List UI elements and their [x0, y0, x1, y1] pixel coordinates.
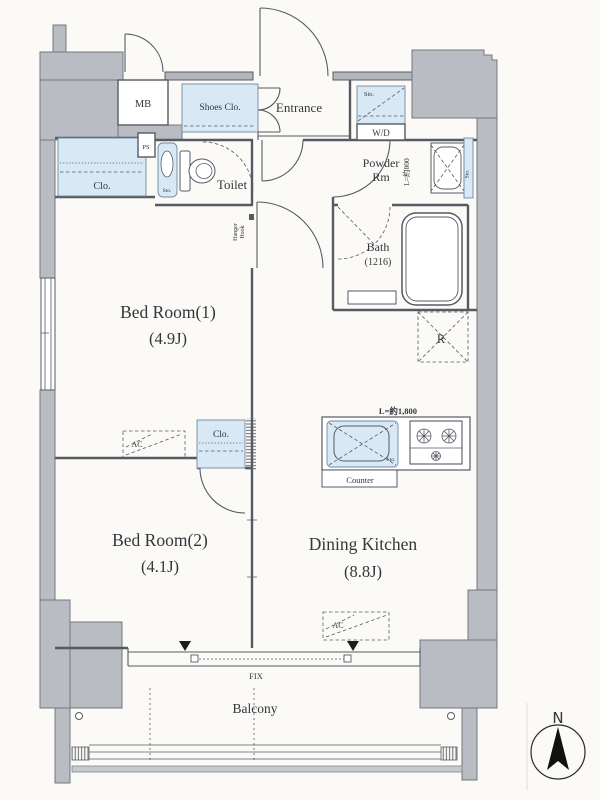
kitchen-stove — [410, 421, 462, 464]
floor-plan-drawing: MB Shoes Clo. Entrance Sto. W/D Clo. PS … — [0, 0, 600, 800]
fix-window: FIX — [128, 641, 420, 681]
entrance: Entrance — [258, 8, 328, 132]
balcony-left-leg — [55, 708, 70, 783]
railing-end-right — [441, 747, 457, 760]
bedroom2-size-label: (4.1J) — [141, 557, 179, 576]
mb-label: MB — [135, 99, 151, 110]
hanger-hook-label-1: Hanger — [233, 223, 239, 241]
wall-top-left-a — [40, 52, 123, 80]
fix-label: FIX — [249, 671, 263, 681]
compass: N — [527, 703, 585, 790]
entrance-door-arc — [260, 8, 328, 76]
wall-band-left-of-entrance — [165, 72, 253, 80]
bathtub — [402, 213, 462, 305]
fridge-label: R — [437, 332, 446, 346]
balcony: Balcony — [72, 688, 462, 772]
toilet-sto-label: Sto. — [163, 188, 172, 194]
bedroom1-door-arc — [257, 202, 323, 268]
balcony-label: Balcony — [233, 701, 278, 716]
hanger-hook-bracket — [249, 214, 254, 220]
powder-label-2: Rm — [372, 170, 390, 184]
mb-door-arc — [125, 34, 163, 72]
wall-left-upper — [40, 140, 55, 278]
wall-bottom-right-b — [420, 640, 497, 708]
bedroom1-label: Bed Room(1) — [120, 302, 216, 322]
balcony-edge — [72, 766, 462, 772]
bath-label-2: (1216) — [365, 257, 392, 268]
powder-room: Powder Rm L=約800 Sto. — [363, 138, 473, 198]
powder-rail-label: L=約800 — [401, 158, 411, 186]
dk-label: Dining Kitchen — [309, 534, 418, 554]
sink-sto-label: Sto. — [387, 457, 396, 463]
stove-burner-right — [442, 429, 456, 443]
kitchen-sink: Sto. — [327, 421, 398, 467]
wall-top-right-block — [412, 50, 497, 118]
wd-sto-label: Sto. — [364, 91, 375, 98]
toilet-label: Toilet — [217, 177, 248, 192]
wall-top-left-b — [40, 80, 118, 140]
bedroom1-size-label: (4.9J) — [149, 329, 187, 348]
wall-bottom-left-b — [70, 622, 122, 708]
powder-label-1: Powder — [363, 156, 400, 170]
washer-dryer-space: Sto. W/D — [357, 86, 405, 140]
dk-size-label: (8.8J) — [344, 562, 382, 581]
wall-right — [477, 118, 497, 640]
wd-label: W/D — [372, 128, 390, 138]
entrance-label: Entrance — [276, 100, 322, 115]
bedroom2-label: Bed Room(2) — [112, 530, 208, 550]
ac1-label: AC — [131, 440, 142, 449]
toilet-bowl — [189, 159, 215, 183]
hanger-hook: Hanger Hook — [233, 223, 246, 241]
stove-burner-left — [417, 429, 431, 443]
bath-room: Bath (1216) — [338, 207, 462, 305]
dining-kitchen: Dining Kitchen (8.8J) AC — [309, 534, 418, 640]
hanger-hook-label-2: Hook — [240, 225, 246, 238]
left-window — [41, 278, 55, 390]
compass-north-label: N — [552, 709, 563, 727]
balcony-railing — [89, 745, 441, 759]
bedroom-1: Bed Room(1) (4.9J) AC Clo. — [120, 202, 323, 513]
ac-space-bedroom1: AC — [123, 431, 185, 458]
wall-band-right-of-entrance — [333, 72, 412, 80]
closet-mid: Clo. — [197, 418, 256, 470]
window-marker-right — [347, 641, 359, 651]
closet-top-label: Clo. — [94, 181, 111, 192]
balcony-drain-right — [448, 713, 455, 720]
stove-burner-small — [432, 452, 441, 461]
balcony-right-leg — [462, 708, 477, 780]
shoes-closet: Shoes Clo. — [182, 84, 258, 132]
closet-mid-label: Clo. — [213, 430, 229, 440]
balcony-drain-left — [76, 713, 83, 720]
bedroom-2: Bed Room(2) (4.1J) — [112, 530, 208, 576]
toilet-room: Sto. Toilet — [158, 142, 253, 197]
wall-left-lower — [40, 390, 55, 600]
ac2-label: AC — [332, 621, 343, 630]
closet-wall-hatch — [246, 418, 256, 470]
mb-room: MB — [118, 34, 168, 125]
closet-top: Clo. — [58, 138, 146, 196]
powder-sto-label: Sto. — [465, 169, 471, 178]
wall-bottom-right-a — [468, 590, 497, 640]
shoes-closet-label: Shoes Clo. — [199, 103, 240, 113]
floor-plan-page: MB Shoes Clo. Entrance Sto. W/D Clo. PS … — [0, 0, 600, 800]
kitchen-rail-label: L=約1,800 — [379, 406, 417, 416]
counter-label: Counter — [346, 475, 374, 485]
refrigerator-space: R — [418, 312, 468, 362]
ac-space-dk: AC — [323, 612, 389, 640]
railing-end-left — [72, 747, 89, 760]
ps-label: PS — [142, 144, 150, 151]
kitchen: L=約1,800 Sto. Counter — [322, 406, 470, 487]
window-marker-left — [179, 641, 191, 651]
wall-bottom-left-a — [40, 600, 70, 708]
wall-top-notch — [53, 25, 66, 53]
bedroom2-door-arc — [200, 468, 245, 513]
pipe-space: PS — [138, 133, 155, 157]
compass-needle — [547, 727, 569, 770]
hall-door-arc — [262, 140, 303, 181]
bath-label-1: Bath — [367, 240, 390, 254]
bath-step — [348, 291, 396, 304]
